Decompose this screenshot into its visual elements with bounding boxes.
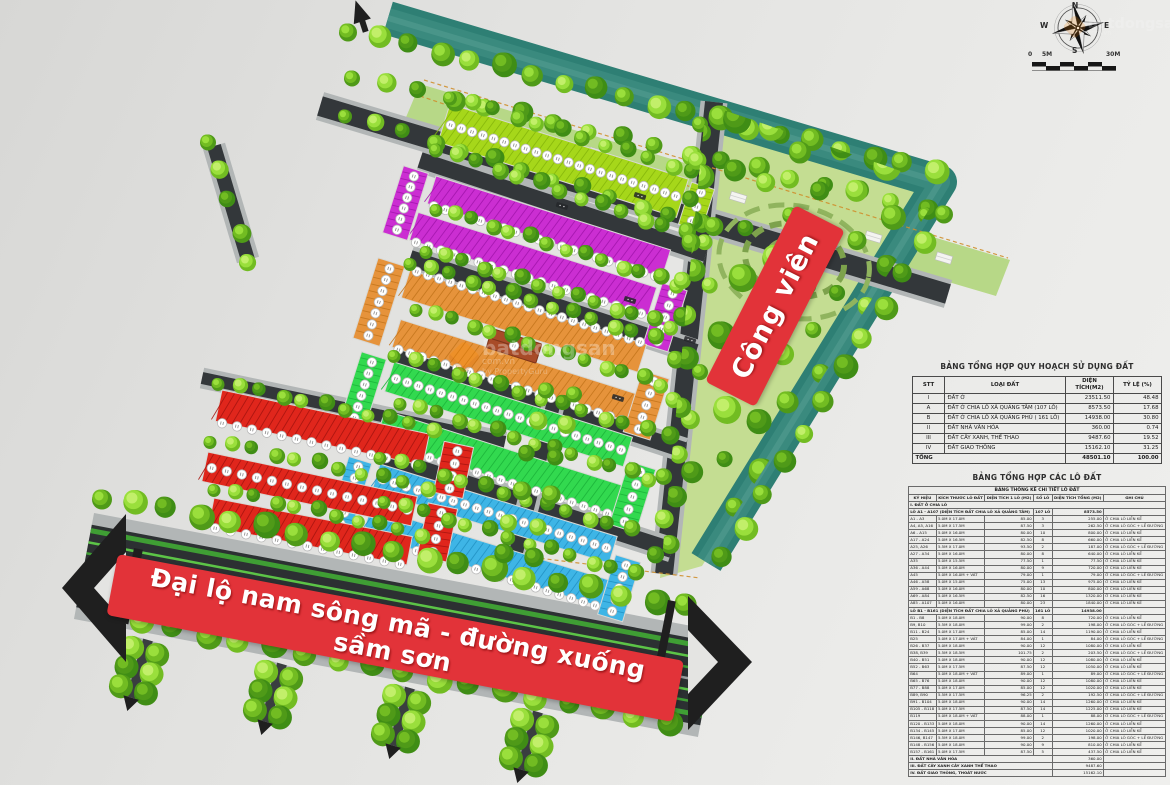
table-row: KÝ HIỆUKÍCH THƯỚC LÔ ĐẤTDIỆN TÍCH 1 LÔ (… (909, 494, 1166, 501)
table-row: A4, A5, A165.0M X 17.5M87.503262.50Ở CHI… (909, 523, 1166, 530)
compass-letter-s: S (1072, 46, 1077, 55)
compass-letter-w: W (1040, 21, 1048, 30)
table-row: B105 - B1185.0M X 17.5M87.50141225.00Ở C… (909, 706, 1166, 713)
lots-table-title: BẢNG TỔNG HỢP CÁC LÔ ĐẤT (905, 473, 1169, 482)
table-row: B26 - B375.0M X 18.0M90.00121080.00Ở CHI… (909, 643, 1166, 650)
table-row: IV. ĐẤT GIAO THÔNG, THOÁT NƯỚC15162.10 (909, 770, 1166, 777)
table-row: III. ĐẤT CÂY XANH CÂY XANH THỂ THAO9487.… (909, 763, 1166, 770)
lots-table: BẢNG THỐNG KÊ CHI TIẾT LÔ ĐẤTKÝ HIỆUKÍCH… (908, 486, 1166, 777)
table-row: A1 - A35.0M X 17.0M85.003255.00Ở CHIA LÔ… (909, 516, 1166, 523)
table-row: IĐẤT Ở23511.5048.48 (913, 394, 1162, 404)
compass-letter-n: N (1072, 1, 1078, 10)
plan-summary-table: STTLOẠI ĐẤTDIỆN TÍCH(M2)TỶ LỆ (%)IĐẤT Ở2… (912, 376, 1162, 464)
table-row: B146, B1475.5M X 18.0M99.002198.00Ở CHIA… (909, 735, 1166, 742)
table-row: B645.0M X 18.0M + VÁT89.00189.00Ở CHIA L… (909, 671, 1166, 678)
table-row: B255.0M X 17.0M + VÁT84.00184.00Ở CHIA L… (909, 636, 1166, 643)
scale-label-5m: 5M (1042, 51, 1052, 58)
table-row: A46 - A585.0M X 15.0M75.0013975.00Ở CHIA… (909, 579, 1166, 586)
table-row: TỔNG48501.10100.00 (913, 454, 1162, 464)
table-row: B9, B105.5M X 18.0M99.002198.00Ở CHIA LÔ… (909, 622, 1166, 629)
compass-letter-e: E (1104, 21, 1109, 30)
table-row: A355.0M X 15.5M77.50177.50Ở CHIA LÔ LIỀN… (909, 558, 1166, 565)
table-row: IVĐẤT GIAO THÔNG15162.1031.25 (913, 444, 1162, 454)
scale-label-30m: 30M (1106, 51, 1120, 58)
table-row: I. ĐẤT Ở CHIA LÔ (909, 502, 1166, 509)
table-row: A6 - A155.0M X 16.0M80.0010800.00Ở CHIA … (909, 530, 1166, 537)
scale-bar (1032, 62, 1116, 71)
table-row: IIIĐẤT CÂY XANH, THỂ THAO9487.6019.52 (913, 434, 1162, 444)
table-row: STTLOẠI ĐẤTDIỆN TÍCH(M2)TỶ LỆ (%) (913, 377, 1162, 394)
table-row: A25, A265.5M X 17.0M93.502187.00Ở CHIA L… (909, 544, 1166, 551)
table-row: BĐẤT Ở CHIA LÔ XÃ QUẢNG PHÚ ( 161 LÔ)149… (913, 414, 1162, 424)
table-row: IIĐẤT NHÀ VĂN HÓA360.000.74 (913, 424, 1162, 434)
table-row: B40 - B515.0M X 18.0M90.00121080.00Ở CHI… (909, 657, 1166, 664)
table-row: A27 - A345.0M X 16.0M80.008640.00Ở CHIA … (909, 551, 1166, 558)
table-row: A17 - A245.0M X 16.5M82.508660.00Ở CHIA … (909, 537, 1166, 544)
site-plan: Đại lộ nam sông mã - đường xuống sầm sơn… (0, 0, 1170, 785)
table-row: B89, B905.5M X 17.5M96.252192.50Ở CHIA L… (909, 692, 1166, 699)
table-row: B11 - B245.0M X 17.0M85.00141190.00Ở CHI… (909, 629, 1166, 636)
info-panel: BẢNG TỔNG HỢP QUY HOẠCH SỬ DỤNG ĐẤT STTL… (905, 362, 1169, 777)
table-row: II. ĐẤT NHÀ VĂN HÓA360.00 (909, 756, 1166, 763)
table-row: B52 - B635.0M X 17.5M87.50121050.00Ở CHI… (909, 664, 1166, 671)
plan-summary-title: BẢNG TỔNG HỢP QUY HOẠCH SỬ DỤNG ĐẤT (905, 362, 1169, 371)
table-row: LÔ B1 - B161 (DIỆN TÍCH ĐẤT CHIA LÔ XÃ Q… (909, 607, 1166, 614)
table-row: A59 - A685.0M X 16.0M80.0010800.00Ở CHIA… (909, 586, 1166, 593)
table-row: B157 - B1615.0M X 17.5M87.505437.50Ở CHI… (909, 749, 1166, 756)
table-row: B77 - B885.0M X 17.0M85.00121020.00Ở CHI… (909, 685, 1166, 692)
table-row: B1195.0M X 18.0M + VÁT88.00188.00Ở CHIA … (909, 713, 1166, 720)
table-row: B120 - B1335.0M X 18.0M90.00141260.00Ở C… (909, 720, 1166, 727)
table-row: B91 - B1045.0M X 18.0M90.00141260.00Ở CH… (909, 699, 1166, 706)
table-row: B1 - B85.0M X 18.0M90.008720.00Ở CHIA LÔ… (909, 615, 1166, 622)
table-row: B148 - B1565.0M X 18.0M90.009810.00Ở CHI… (909, 742, 1166, 749)
table-row: LÔ A1 - A107 (DIỆN TÍCH ĐẤT CHIA LÔ XÃ Q… (909, 509, 1166, 516)
table-row: A69 - A845.0M X 16.5M82.50161320.00Ở CHI… (909, 593, 1166, 600)
table-row: B38, B395.5M X 18.5M101.752203.50Ở CHIA … (909, 650, 1166, 657)
table-row: A455.0M X 16.0M + VÁT79.00179.00Ở CHIA L… (909, 572, 1166, 579)
table-row: A85 - A1075.0M X 16.0M80.00231840.00Ở CH… (909, 600, 1166, 607)
table-row: B65 - B765.0M X 18.0M90.00121080.00Ở CHI… (909, 678, 1166, 685)
table-row: B134 - B1455.0M X 17.0M85.00121020.00Ở C… (909, 728, 1166, 735)
table-row: AĐẤT Ở CHIA LÔ XÃ QUẢNG TÂM (107 LÔ)8573… (913, 404, 1162, 414)
scale-label-zero: 0 (1028, 51, 1032, 58)
table-row: BẢNG THỐNG KÊ CHI TIẾT LÔ ĐẤT (909, 487, 1166, 495)
table-row: A36 - A445.0M X 16.0M80.009720.00Ở CHIA … (909, 565, 1166, 572)
map-furniture (1032, 0, 1116, 70)
